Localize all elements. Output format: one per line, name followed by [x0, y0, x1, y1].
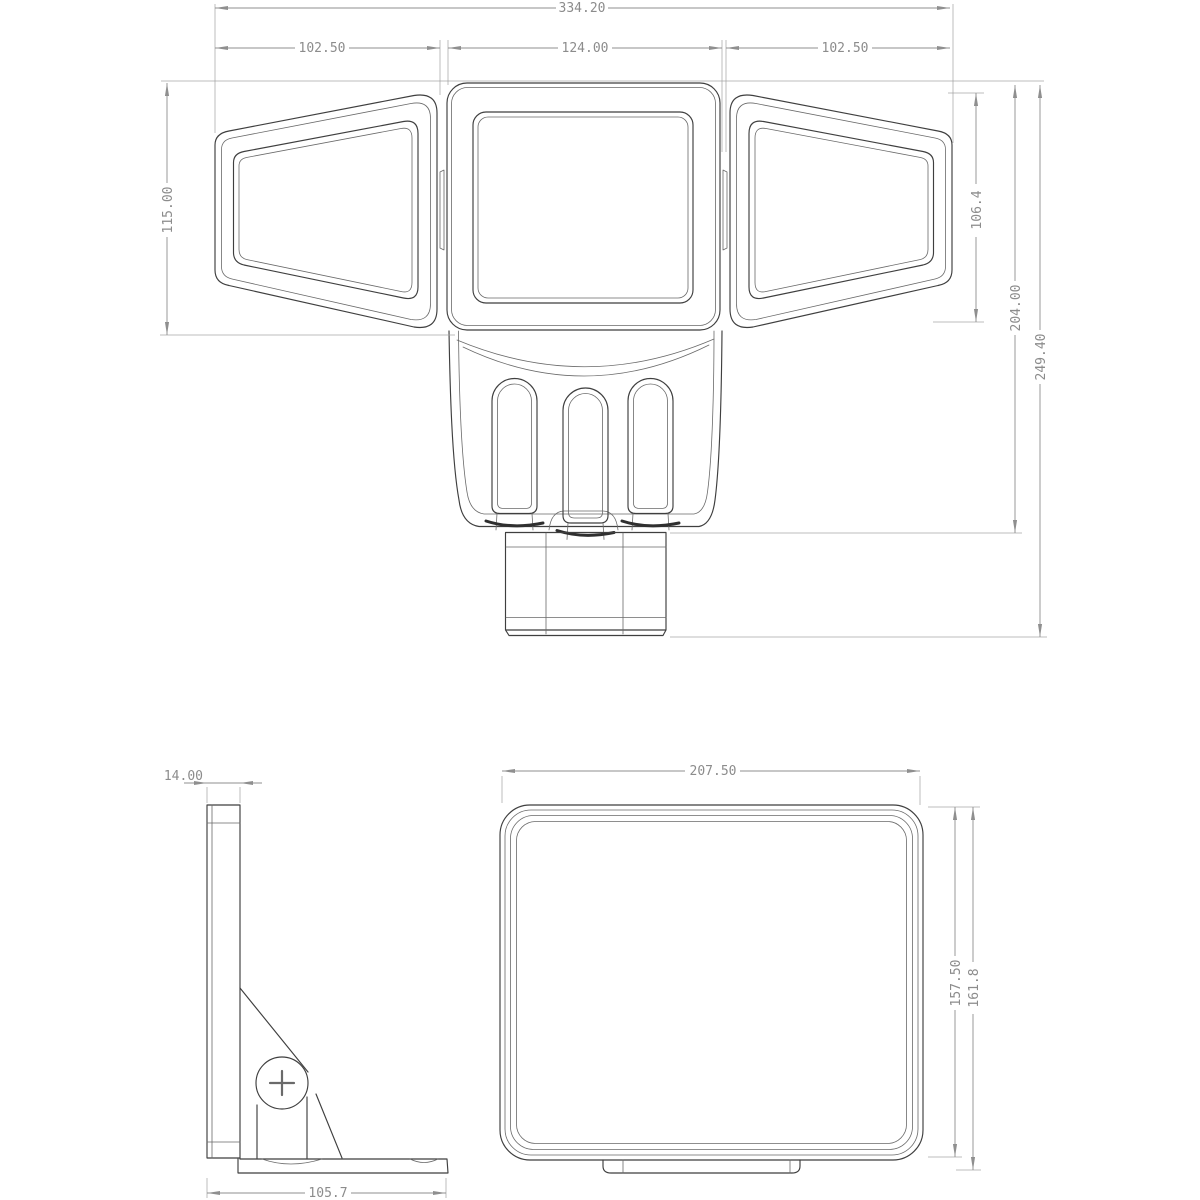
dim-center-panel-width: 124.00 [448, 41, 722, 56]
vent-slot-right [622, 379, 679, 531]
slot-foot-ticks [496, 514, 533, 531]
body-top-arc-inner [463, 345, 709, 376]
mount-cylinder [506, 533, 667, 636]
dim-back-width-value: 207.50 [690, 764, 737, 779]
back-inner-line-2 [511, 816, 913, 1150]
dim-back-height-value: 157.50 [949, 960, 964, 1007]
drawing-page: 334.20 102.50 124.00 102.50 115.00 106.4… [0, 0, 1200, 1200]
left-wing-panel [215, 95, 444, 327]
hinge-lines [440, 170, 444, 250]
back-inner-line-3 [517, 822, 907, 1144]
pivot-bracket [240, 988, 342, 1159]
vent-slot-middle [557, 388, 614, 540]
side-view [207, 805, 448, 1173]
cylinder-detail-lines [506, 533, 666, 634]
center-lens-inner-line [478, 117, 688, 298]
body-top-arc [457, 339, 714, 367]
back-mount-tab [603, 1160, 800, 1173]
side-panel [207, 805, 240, 1159]
front-view [215, 83, 952, 636]
right-wing-panel [723, 95, 952, 327]
dim-left-panel-width-value: 102.50 [299, 41, 346, 56]
back-inner-line-1 [505, 810, 918, 1155]
dim-side-panel-height-value: 106.4 [970, 190, 985, 229]
wing-lens-inner-line [239, 128, 412, 292]
slot-inner-line [498, 384, 532, 509]
center-lens-outline [473, 112, 693, 303]
cylinder-outline [506, 533, 667, 636]
dim-overall-width: 334.20 [215, 1, 950, 16]
slot-outline [492, 379, 537, 514]
dimensions: 334.20 102.50 124.00 102.50 115.00 106.4… [161, 1, 1049, 1200]
dim-side-panel-height: 106.4 [970, 93, 985, 322]
center-panel-outline [447, 83, 720, 330]
dim-overall-width-value: 334.20 [559, 1, 606, 16]
lamp-body [449, 331, 722, 530]
dim-panel-thickness: 14.00 [164, 769, 262, 784]
dim-right-panel-width: 102.50 [726, 41, 950, 56]
vent-slots [486, 379, 679, 540]
dim-overall-height-value: 249.40 [1034, 334, 1049, 381]
dim-panel-thickness-value: 14.00 [164, 769, 203, 784]
side-extension-lines [207, 787, 446, 1198]
screw-cross-icon [270, 1071, 294, 1095]
technical-drawing-flood-light: 334.20 102.50 124.00 102.50 115.00 106.4… [0, 0, 1200, 1200]
dim-base-depth: 105.7 [207, 1186, 446, 1200]
back-extension-lines [502, 776, 981, 1170]
back-outline [500, 805, 923, 1160]
mount-base-plate [238, 1159, 448, 1173]
slot-shadow-dash [486, 521, 543, 526]
dim-head-height: 115.00 [161, 83, 176, 335]
dim-back-width: 207.50 [502, 764, 920, 779]
dim-head-height-value: 115.00 [161, 187, 176, 234]
vent-slot [486, 379, 543, 531]
body-inner-line [459, 331, 715, 514]
wing-outline [215, 95, 437, 327]
front-extension-lines [160, 4, 1047, 637]
dim-body-height-value: 204.00 [1009, 285, 1024, 332]
dim-base-depth-value: 105.7 [308, 1186, 347, 1200]
dim-back-height: 157.50 [949, 807, 964, 1157]
center-panel-inner-line [452, 88, 716, 326]
bracket-outline [240, 988, 342, 1159]
back-view [500, 805, 923, 1173]
dim-back-overall-height: 161.8 [967, 807, 982, 1170]
side-panel-detail-lines [207, 805, 240, 1158]
body-outline [449, 331, 722, 527]
dim-right-panel-width-value: 102.50 [822, 41, 869, 56]
dim-overall-height: 249.40 [1034, 85, 1049, 637]
back-mount-tab-detail [623, 1160, 790, 1173]
wing-inner-line [222, 103, 431, 320]
dim-back-overall-height-value: 161.8 [967, 968, 982, 1007]
dim-left-panel-width: 102.50 [215, 41, 440, 56]
base-plate-arcs [262, 1159, 438, 1164]
dim-center-panel-width-value: 124.00 [562, 41, 609, 56]
wing-lens-outline [234, 121, 419, 298]
center-panel [447, 83, 720, 330]
dim-body-height: 204.00 [1009, 85, 1024, 533]
